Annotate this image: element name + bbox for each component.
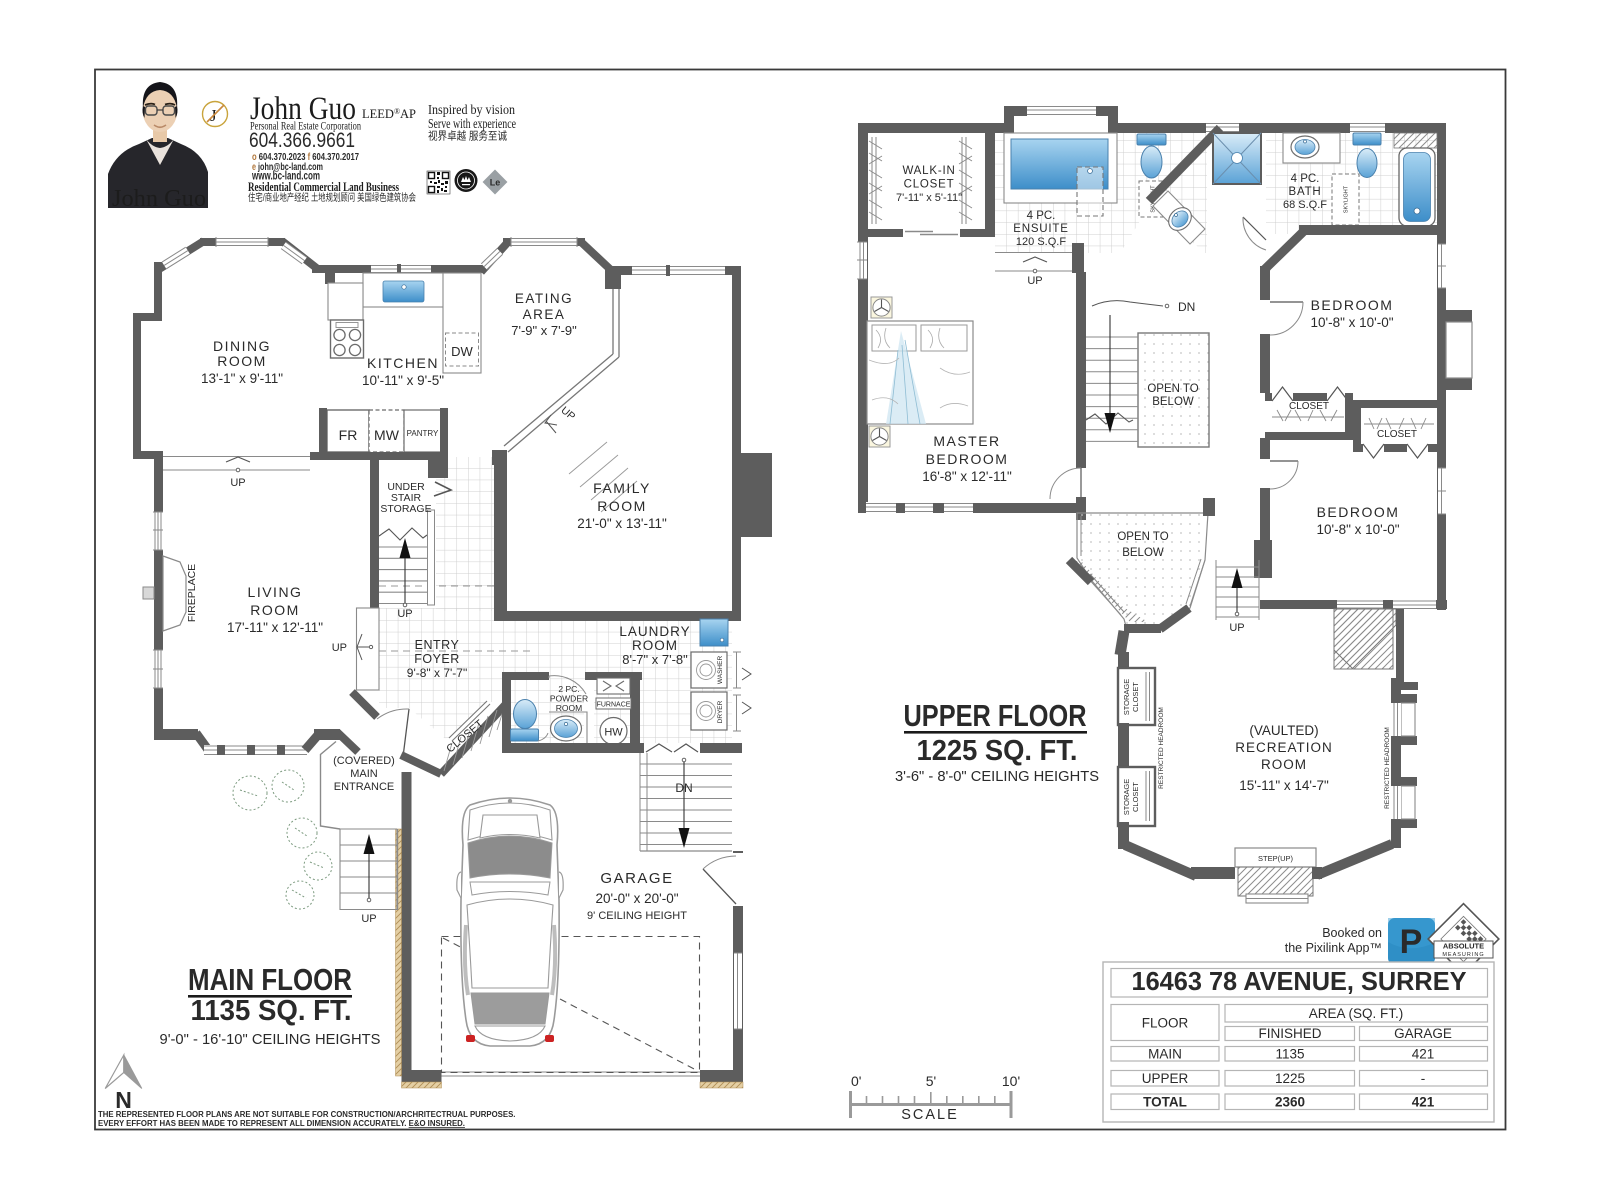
- svg-text:9'-8" x 7'-7": 9'-8" x 7'-7": [407, 666, 467, 680]
- svg-text:STORAGE: STORAGE: [1122, 779, 1131, 816]
- svg-text:GARAGE: GARAGE: [1394, 1026, 1452, 1041]
- svg-text:CLOSET: CLOSET: [1131, 782, 1140, 812]
- svg-text:BEDROOM: BEDROOM: [1311, 297, 1394, 313]
- svg-text:视界卓越 服务至诚: 视界卓越 服务至诚: [428, 129, 507, 143]
- svg-text:MAIN FLOOR: MAIN FLOOR: [188, 962, 352, 997]
- svg-text:(COVERED): (COVERED): [333, 755, 395, 767]
- svg-text:BELOW: BELOW: [1122, 547, 1164, 559]
- svg-text:KITCHEN: KITCHEN: [367, 355, 439, 371]
- svg-text:2 PC.: 2 PC.: [558, 684, 579, 694]
- svg-text:EVERY EFFORT HAS BEEN MADE TO: EVERY EFFORT HAS BEEN MADE TO REPRESENT …: [98, 1119, 465, 1128]
- svg-text:P: P: [1400, 923, 1423, 961]
- svg-text:3'-6" - 8'-0" CEILING HEIGHTS: 3'-6" - 8'-0" CEILING HEIGHTS: [895, 769, 1099, 785]
- svg-text:7'-9" x 7'-9": 7'-9" x 7'-9": [511, 323, 577, 338]
- svg-text:OPEN TO: OPEN TO: [1117, 531, 1168, 543]
- svg-text:ENTRANCE: ENTRANCE: [334, 781, 395, 793]
- svg-text:MASTER: MASTER: [933, 433, 1000, 449]
- svg-text:UP: UP: [332, 642, 347, 654]
- svg-text:20'-0" x 20'-0": 20'-0" x 20'-0": [595, 891, 678, 906]
- svg-text:68 S.Q.F: 68 S.Q.F: [1283, 199, 1327, 211]
- svg-text:OPEN TO: OPEN TO: [1147, 383, 1198, 395]
- svg-text:LIVING: LIVING: [248, 584, 303, 600]
- svg-text:DW: DW: [451, 344, 473, 359]
- svg-text:21'-0" x 13'-11": 21'-0" x 13'-11": [577, 516, 667, 531]
- svg-text:DRYER: DRYER: [717, 700, 724, 723]
- svg-text:GARAGE: GARAGE: [600, 870, 673, 887]
- svg-text:7'-11" x 5'-11": 7'-11" x 5'-11": [896, 192, 962, 204]
- svg-text:ENTRY: ENTRY: [415, 638, 460, 652]
- svg-text:421: 421: [1412, 1047, 1435, 1062]
- svg-text:UP: UP: [397, 608, 412, 620]
- svg-text:Booked on: Booked on: [1322, 926, 1382, 940]
- svg-text:FAMILY: FAMILY: [593, 480, 651, 496]
- svg-text:Inspired by vision: Inspired by vision: [428, 103, 515, 118]
- svg-text:Residential Commercial Land Bu: Residential Commercial Land Business: [248, 179, 399, 194]
- svg-text:AREA (SQ. FT.): AREA (SQ. FT.): [1309, 1006, 1404, 1021]
- svg-text:10'-8" x 10'-0": 10'-8" x 10'-0": [1310, 315, 1393, 330]
- svg-text:UPPER FLOOR: UPPER FLOOR: [904, 698, 1087, 733]
- svg-text:LEED®AP: LEED®AP: [362, 107, 416, 121]
- svg-text:FURNACE: FURNACE: [597, 702, 631, 709]
- svg-text:-: -: [1421, 1071, 1426, 1086]
- svg-text:10'-8" x 10'-0": 10'-8" x 10'-0": [1316, 522, 1399, 537]
- svg-text:EATING: EATING: [515, 291, 573, 306]
- svg-text:TOTAL: TOTAL: [1143, 1095, 1187, 1110]
- svg-text:4 PC.: 4 PC.: [1291, 173, 1320, 185]
- svg-text:DINING: DINING: [213, 338, 271, 354]
- svg-text:MAIN: MAIN: [350, 768, 378, 780]
- svg-text:BELOW: BELOW: [1152, 396, 1194, 408]
- svg-text:John Guo: John Guo: [112, 186, 206, 212]
- svg-text:ENSUITE: ENSUITE: [1013, 223, 1068, 235]
- svg-text:UP: UP: [1229, 622, 1244, 634]
- svg-text:UP: UP: [1027, 275, 1042, 287]
- svg-text:1225: 1225: [1275, 1071, 1305, 1086]
- svg-text:604.366.9661: 604.366.9661: [249, 128, 355, 152]
- svg-text:ROOM: ROOM: [250, 602, 300, 618]
- svg-text:POWDER: POWDER: [550, 694, 588, 704]
- svg-text:DN: DN: [1178, 300, 1195, 314]
- svg-text:RESTRICTED HEADROOM: RESTRICTED HEADROOM: [1384, 727, 1391, 809]
- svg-text:STORAGE: STORAGE: [1122, 679, 1131, 716]
- svg-text:9'-0" - 16'-10" CEILING HEIGHT: 9'-0" - 16'-10" CEILING HEIGHTS: [160, 1032, 381, 1048]
- svg-text:1135 SQ. FT.: 1135 SQ. FT.: [191, 995, 352, 1027]
- svg-text:WALK-IN: WALK-IN: [902, 165, 955, 177]
- svg-text:DN: DN: [675, 781, 692, 795]
- svg-text:住宅/商业地产经纪 土地规划顾问 美国绿色建筑协会: 住宅/商业地产经纪 土地规划顾问 美国绿色建筑协会: [248, 191, 416, 204]
- svg-text:MAIN: MAIN: [1148, 1047, 1182, 1062]
- svg-text:CLOSET: CLOSET: [1377, 429, 1417, 440]
- svg-text:17'-11" x 12'-11": 17'-11" x 12'-11": [227, 620, 323, 635]
- svg-text:CLOSET: CLOSET: [1289, 401, 1329, 412]
- svg-text:16'-8" x 12'-11": 16'-8" x 12'-11": [922, 469, 1012, 484]
- svg-text:8'-7" x 7'-8": 8'-7" x 7'-8": [622, 652, 688, 667]
- svg-text:MW: MW: [374, 427, 400, 443]
- svg-text:the Pixilink App™: the Pixilink App™: [1285, 941, 1382, 955]
- svg-text:SKYLIGHT: SKYLIGHT: [1344, 185, 1350, 213]
- svg-text:13'-1" x 9'-11": 13'-1" x 9'-11": [201, 371, 283, 386]
- svg-text:BEDROOM: BEDROOM: [1317, 504, 1400, 520]
- svg-text:2360: 2360: [1275, 1095, 1305, 1110]
- svg-text:THE REPRESENTED FLOOR PLANS AR: THE REPRESENTED FLOOR PLANS ARE NOT SUIT…: [98, 1110, 515, 1119]
- svg-text:RECREATION: RECREATION: [1235, 740, 1333, 755]
- svg-text:CLOSET: CLOSET: [904, 179, 955, 191]
- svg-text:120 S.Q.F: 120 S.Q.F: [1016, 236, 1066, 248]
- svg-text:15'-11" x 14'-7": 15'-11" x 14'-7": [1239, 778, 1329, 793]
- svg-text:0': 0': [851, 1073, 861, 1089]
- svg-text:BATH: BATH: [1288, 186, 1321, 198]
- svg-text:HW: HW: [604, 727, 623, 739]
- svg-text:10'-11" x 9'-5": 10'-11" x 9'-5": [362, 373, 444, 388]
- svg-text:STEP(UP): STEP(UP): [1258, 854, 1294, 863]
- svg-text:STORAGE: STORAGE: [380, 503, 431, 515]
- svg-text:AREA: AREA: [523, 307, 566, 322]
- svg-text:RESTRICTED HEADROOM: RESTRICTED HEADROOM: [1158, 707, 1165, 789]
- svg-text:421: 421: [1412, 1095, 1435, 1110]
- svg-text:FR: FR: [339, 427, 358, 443]
- svg-text:PANTRY: PANTRY: [407, 429, 439, 438]
- svg-text:(VAULTED): (VAULTED): [1249, 723, 1318, 738]
- svg-text:UPPER: UPPER: [1142, 1071, 1189, 1086]
- svg-text:FINISHED: FINISHED: [1258, 1026, 1321, 1041]
- svg-text:FOYER: FOYER: [414, 652, 460, 666]
- svg-text:MEASURING: MEASURING: [1442, 952, 1484, 958]
- svg-text:WASHER: WASHER: [717, 656, 724, 685]
- svg-text:5': 5': [926, 1073, 936, 1089]
- svg-text:BEDROOM: BEDROOM: [926, 451, 1009, 467]
- svg-text:1225 SQ. FT.: 1225 SQ. FT.: [917, 735, 1078, 767]
- svg-text:CLOSET: CLOSET: [1131, 682, 1140, 712]
- svg-text:SCALE: SCALE: [901, 1107, 959, 1123]
- svg-text:Le: Le: [490, 178, 501, 188]
- svg-text:10': 10': [1002, 1073, 1020, 1089]
- svg-text:1135: 1135: [1275, 1047, 1304, 1062]
- svg-text:ROOM: ROOM: [556, 703, 582, 713]
- svg-text:FLOOR: FLOOR: [1142, 1016, 1189, 1031]
- svg-text:UP: UP: [361, 913, 376, 925]
- svg-text:LAUNDRY: LAUNDRY: [619, 624, 690, 639]
- svg-text:4 PC.: 4 PC.: [1027, 210, 1056, 222]
- svg-text:UP: UP: [230, 477, 245, 489]
- svg-text:16463 78 AVENUE, SURREY: 16463 78 AVENUE, SURREY: [1132, 966, 1467, 996]
- svg-text:9' CEILING HEIGHT: 9' CEILING HEIGHT: [587, 910, 687, 922]
- svg-text:FIREPLACE: FIREPLACE: [186, 564, 198, 622]
- svg-text:ABSOLUTE: ABSOLUTE: [1443, 942, 1484, 951]
- svg-text:ROOM: ROOM: [632, 638, 678, 653]
- svg-text:ROOM: ROOM: [597, 498, 647, 514]
- svg-text:ROOM: ROOM: [217, 353, 267, 369]
- svg-text:ROOM: ROOM: [1261, 757, 1307, 772]
